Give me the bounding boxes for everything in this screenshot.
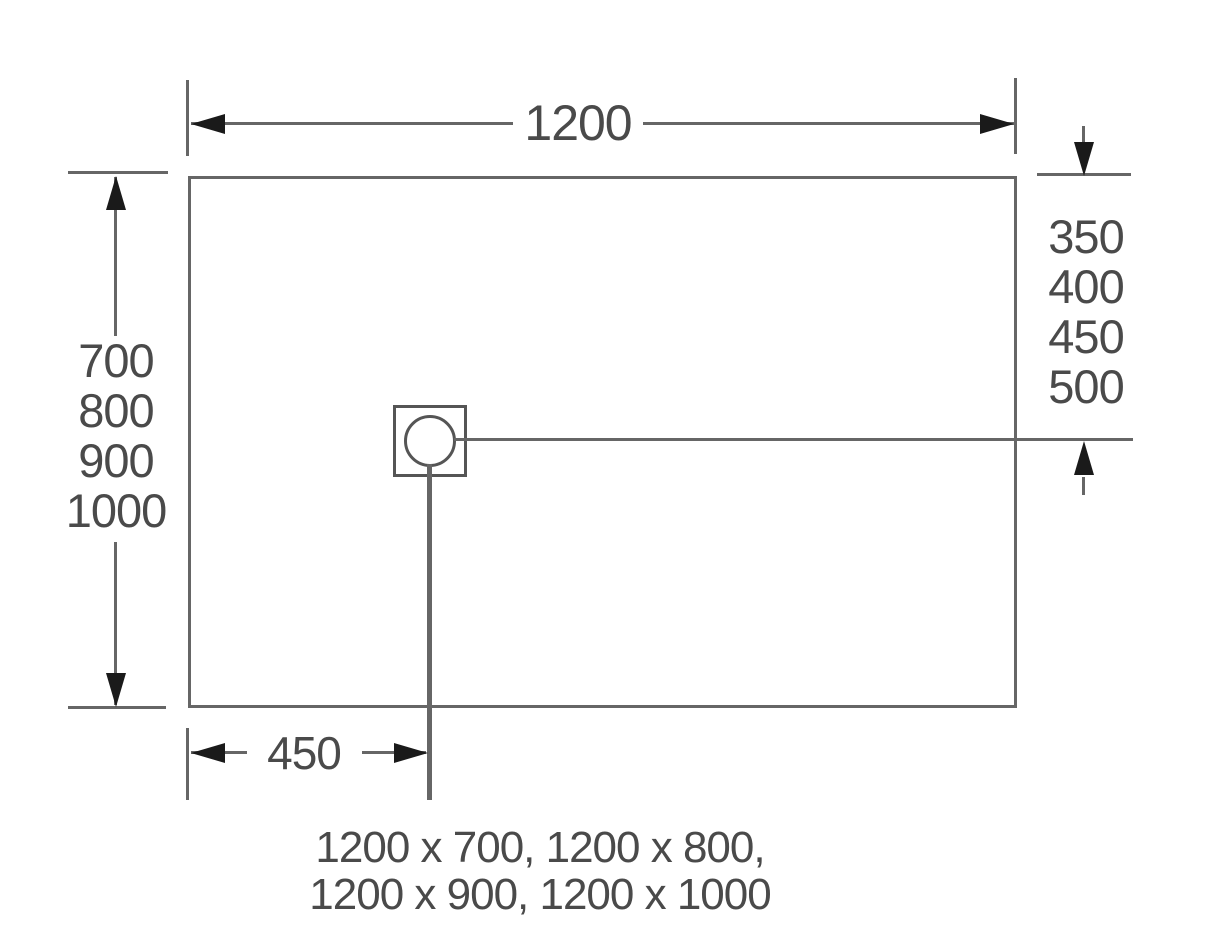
width-dim-arrowhead-right-icon bbox=[980, 114, 1014, 134]
length-dim-arrowhead-up-icon bbox=[106, 176, 126, 210]
width-dim-label: 1200 bbox=[524, 98, 631, 148]
drain-top-dim-arrowhead-down-icon bbox=[1074, 142, 1094, 176]
drain-top-label-400: 400 bbox=[1048, 262, 1123, 312]
width-dim-extension-left bbox=[186, 80, 189, 156]
shower-tray-dimension-diagram: 1200 700 800 900 1000 350 400 450 500 45… bbox=[0, 0, 1206, 944]
length-label-1000: 1000 bbox=[66, 486, 167, 536]
drain-top-dim-arrowhead-up-icon bbox=[1074, 441, 1094, 475]
drain-top-label-450: 450 bbox=[1048, 312, 1123, 362]
size-caption: 1200 x 700, 1200 x 800, 1200 x 900, 1200… bbox=[309, 824, 770, 918]
drain-top-dim-labels: 350 400 450 500 bbox=[1048, 212, 1123, 412]
width-dim-line-right bbox=[643, 122, 1014, 125]
drain-left-dim-arrowhead-right-icon bbox=[394, 743, 428, 763]
drain-left-dim-arrowhead-left-icon bbox=[191, 743, 225, 763]
waste-outlet-circle bbox=[404, 415, 456, 467]
width-dim-arrowhead-left-icon bbox=[191, 114, 225, 134]
size-caption-line2: 1200 x 900, 1200 x 1000 bbox=[309, 871, 770, 918]
drain-centerline-horizontal bbox=[454, 438, 1133, 441]
tray-outline bbox=[188, 176, 1017, 708]
drain-top-dim-tail-lower bbox=[1082, 477, 1085, 495]
length-label-900: 900 bbox=[66, 436, 167, 486]
width-dim-line-left bbox=[191, 122, 513, 125]
width-dim-extension-right bbox=[1014, 78, 1017, 154]
drain-top-label-500: 500 bbox=[1048, 362, 1123, 412]
drain-top-label-350: 350 bbox=[1048, 212, 1123, 262]
length-dim-labels: 700 800 900 1000 bbox=[66, 336, 167, 536]
drain-left-dim-label: 450 bbox=[267, 728, 341, 778]
length-dim-tick-top bbox=[68, 171, 168, 174]
length-label-800: 800 bbox=[66, 386, 167, 436]
size-caption-line1: 1200 x 700, 1200 x 800, bbox=[309, 824, 770, 871]
drain-left-dim-extension bbox=[186, 728, 189, 800]
length-dim-arrowhead-down-icon bbox=[106, 673, 126, 707]
length-label-700: 700 bbox=[66, 336, 167, 386]
